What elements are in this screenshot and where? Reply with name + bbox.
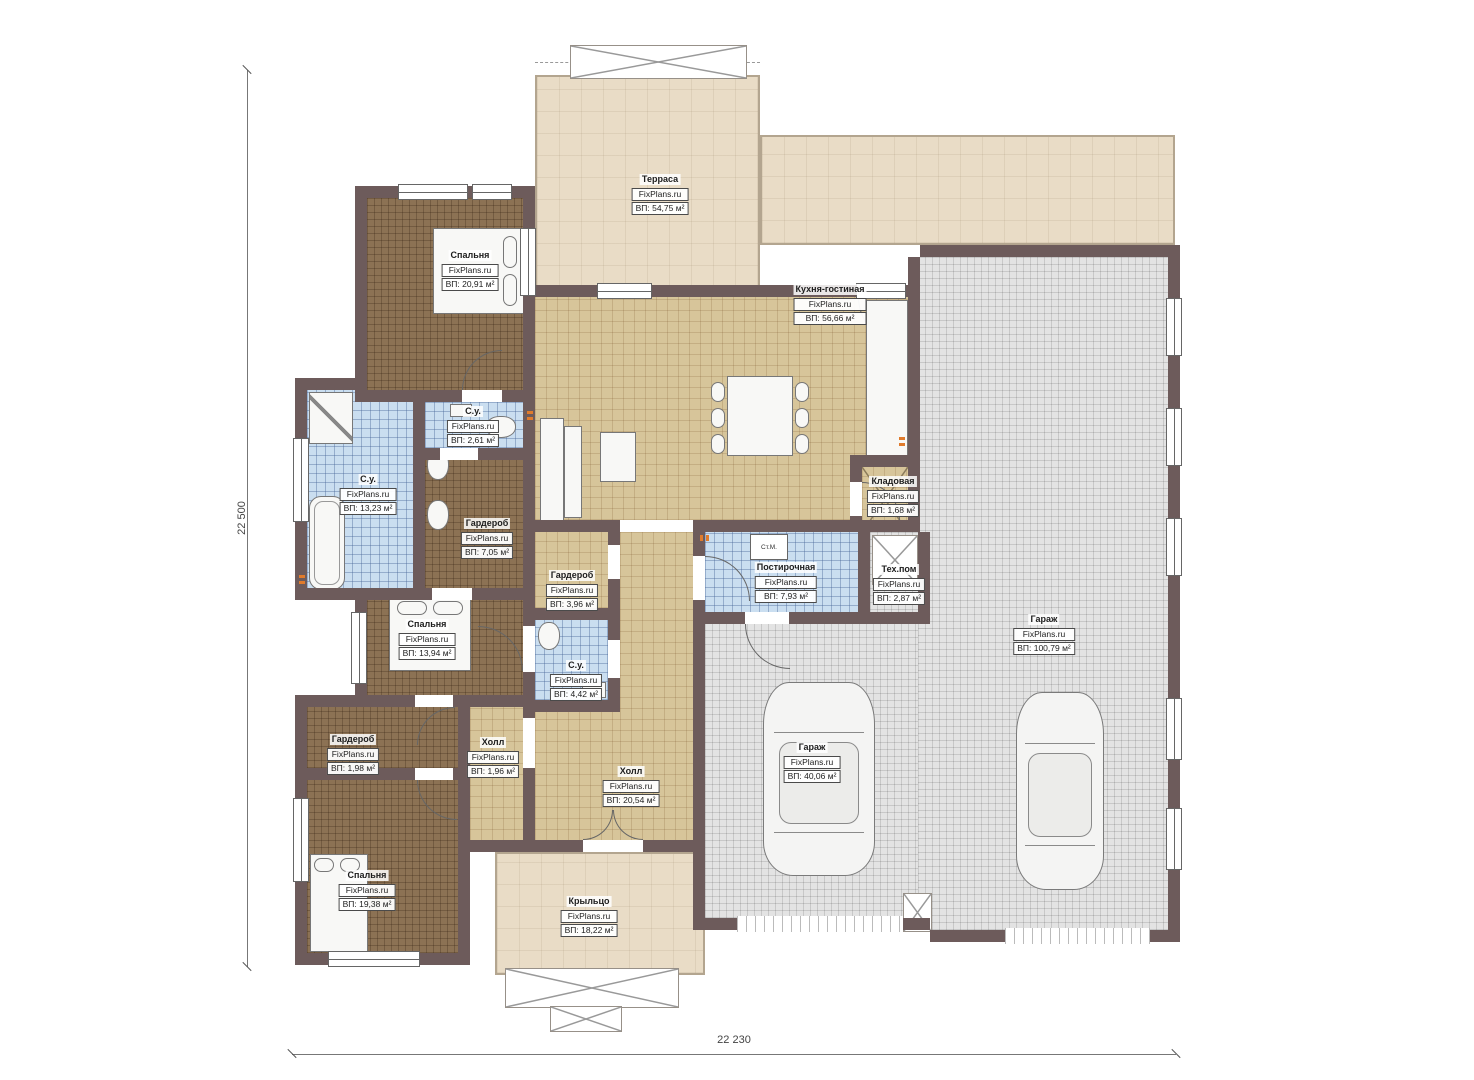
room-name: Крыльцо [567,896,612,907]
room-label-bedroom-3: Спальня FixPlans.ru ВП: 19,38 м² [339,865,396,911]
room-area: ВП: 18,22 м² [561,924,618,937]
room-area: ВП: 4,42 м² [550,688,602,701]
room-area: ВП: 56,66 м² [794,312,867,325]
window [1166,808,1182,870]
radiator-mark [700,535,712,541]
floor-terrace-right [760,135,1175,245]
window [328,951,420,967]
brand-label: FixPlans.ru [632,188,689,201]
brand-label: FixPlans.ru [784,756,841,769]
garage-door-opening [737,916,903,932]
pillow [314,858,334,872]
room-area: ВП: 40,06 м² [784,770,841,783]
door-opening [432,588,472,600]
room-area: ВП: 2,87 м² [873,592,925,605]
brand-label: FixPlans.ru [339,884,396,897]
room-label-wardrobe-198: Гардероб FixPlans.ru ВП: 1,98 м² [327,729,379,775]
brand-label: FixPlans.ru [399,633,456,646]
room-name: Кладовая [869,476,916,487]
wall [295,588,535,600]
dimension-label-bottom: 22 230 [717,1034,751,1046]
room-label-bathroom-1323: С.у. FixPlans.ru ВП: 13,23 м² [340,469,397,515]
door-opening [523,626,535,672]
brand-label: FixPlans.ru [873,578,925,591]
window [351,612,367,684]
room-label-tech-room: Тех.пом FixPlans.ru ВП: 2,87 м² [873,559,925,605]
car-windshield-line [1025,743,1095,744]
room-area: ВП: 1,68 м² [867,504,919,517]
terrace-door [597,283,652,299]
brand-label: FixPlans.ru [561,910,618,923]
door-opening [850,482,862,516]
room-name: Спальня [449,250,492,261]
room-label-bedroom-1: Спальня FixPlans.ru ВП: 20,91 м² [442,245,499,291]
window [398,184,468,200]
room-area: ВП: 3,96 м² [546,598,598,611]
wall [355,390,535,402]
toilet [538,622,560,650]
brand-label: FixPlans.ru [461,532,513,545]
room-area: ВП: 1,96 м² [467,765,519,778]
room-label-storage: Кладовая FixPlans.ru ВП: 1,68 м² [867,471,919,517]
brand-label: FixPlans.ru [755,576,817,589]
chair [795,408,809,428]
door-opening [608,640,620,678]
pillow [397,601,427,615]
chair [711,382,725,402]
wall [413,390,425,600]
room-label-porch: Крыльцо FixPlans.ru ВП: 18,22 м² [561,891,618,937]
dimension-label-left: 22 500 [236,501,248,535]
room-label-hall-small: Холл FixPlans.ru ВП: 1,96 м² [467,732,519,778]
window [293,438,309,522]
room-label-garage-small: Гараж FixPlans.ru ВП: 40,06 м² [784,737,841,783]
coffee-table [600,432,636,482]
room-name: Спальня [406,619,449,630]
wall [858,532,870,624]
door-opening [693,556,705,600]
room-name: Терраса [640,174,680,185]
car [1016,692,1104,890]
shower [309,392,353,444]
car-rear-line [1025,845,1095,846]
room-label-wardrobe-705: Гардероб FixPlans.ru ВП: 7,05 м² [461,513,513,559]
window [1166,298,1182,356]
wall [705,612,930,624]
brand-label: FixPlans.ru [546,584,598,597]
entrance-door-opening [583,840,643,852]
room-name: Холл [480,737,507,748]
dimension-line-bottom [292,1054,1176,1055]
room-label-bathroom-442: С.у. FixPlans.ru ВП: 4,42 м² [550,655,602,701]
car-roof [1028,753,1091,836]
radiator-mark [527,408,533,420]
door-opening [608,545,620,579]
room-area: ВП: 100,79 м² [1013,642,1075,655]
room-area: ВП: 54,75 м² [632,202,689,215]
floor-hall-small [470,707,523,852]
room-name: Гараж [797,742,828,753]
room-area: ВП: 19,38 м² [339,898,396,911]
brand-label: FixPlans.ru [327,748,379,761]
room-name: Тех.пом [880,564,919,575]
room-label-bathroom-261: С.у. FixPlans.ru ВП: 2,61 м² [447,401,499,447]
room-label-garage-big: Гараж FixPlans.ru ВП: 100,79 м² [1013,609,1075,655]
room-name: Гардероб [549,570,596,581]
radiator-mark [899,434,905,446]
wall [693,520,920,532]
room-area: ВП: 20,91 м² [442,278,499,291]
brand-label: FixPlans.ru [442,264,499,277]
room-name: Гардероб [330,734,377,745]
vent-box [570,45,747,79]
sofa [540,418,564,526]
room-label-bedroom-2: Спальня FixPlans.ru ВП: 13,94 м² [399,614,456,660]
room-name: Постирочная [755,562,817,573]
pillow [433,601,463,615]
brand-label: FixPlans.ru [447,420,499,433]
brand-label: FixPlans.ru [867,490,919,503]
chair [711,434,725,454]
window [520,228,536,296]
wall [535,520,620,532]
room-name: С.у. [358,474,378,485]
dining-table [727,376,793,456]
room-name: Спальня [346,870,389,881]
car-windshield-line [774,732,864,733]
room-name: С.у. [566,660,586,671]
room-label-laundry: Постирочная FixPlans.ru ВП: 7,93 м² [755,557,817,603]
floor-plan: Ст.М. Терраса FixPlans.ru ВП: 54,75 м² С [0,0,1474,1080]
room-area: ВП: 13,94 м² [399,647,456,660]
radiator-mark [299,572,305,584]
pillow [503,236,517,268]
room-area: ВП: 7,05 м² [461,546,513,559]
room-label-hall-main: Холл FixPlans.ru ВП: 20,54 м² [603,761,660,807]
door-opening [745,612,789,624]
brand-label: FixPlans.ru [467,751,519,764]
room-area: ВП: 13,23 м² [340,502,397,515]
room-label-terrace: Терраса FixPlans.ru ВП: 54,75 м² [632,169,689,215]
room-name: Холл [618,766,645,777]
chair [711,408,725,428]
window [472,184,512,200]
wall [850,455,908,467]
sofa-seat [564,426,582,518]
door-opening [415,695,453,707]
window [1166,518,1182,576]
door-opening [523,718,535,768]
window [1166,698,1182,760]
brand-label: FixPlans.ru [340,488,397,501]
door-opening [440,448,478,460]
wall [920,245,1180,257]
window [293,798,309,882]
brand-label: FixPlans.ru [550,674,602,687]
window [1166,408,1182,466]
chair [795,434,809,454]
room-label-wardrobe-396: Гардероб FixPlans.ru ВП: 3,96 м² [546,565,598,611]
room-name: Гардероб [464,518,511,529]
car-rear-line [774,832,864,833]
garage-door-opening [1005,928,1150,944]
wall [355,186,367,402]
room-area: ВП: 2,61 м² [447,434,499,447]
room-label-kitchen-living: Кухня-гостиная FixPlans.ru ВП: 56,66 м² [794,279,867,325]
vent-box [505,968,679,1008]
room-name: С.у. [463,406,483,417]
pillow [503,274,517,306]
room-area: ВП: 7,93 м² [755,590,817,603]
chair [795,382,809,402]
door-opening [415,768,453,780]
room-area: ВП: 20,54 м² [603,794,660,807]
wall [458,840,535,852]
room-name: Гараж [1029,614,1060,625]
room-area: ВП: 1,98 м² [327,762,379,775]
toilet [427,500,449,530]
brand-label: FixPlans.ru [794,298,867,311]
room-name: Кухня-гостиная [794,284,867,295]
brand-label: FixPlans.ru [1013,628,1075,641]
vent-box [550,1006,622,1032]
wall [295,378,367,390]
brand-label: FixPlans.ru [603,780,660,793]
